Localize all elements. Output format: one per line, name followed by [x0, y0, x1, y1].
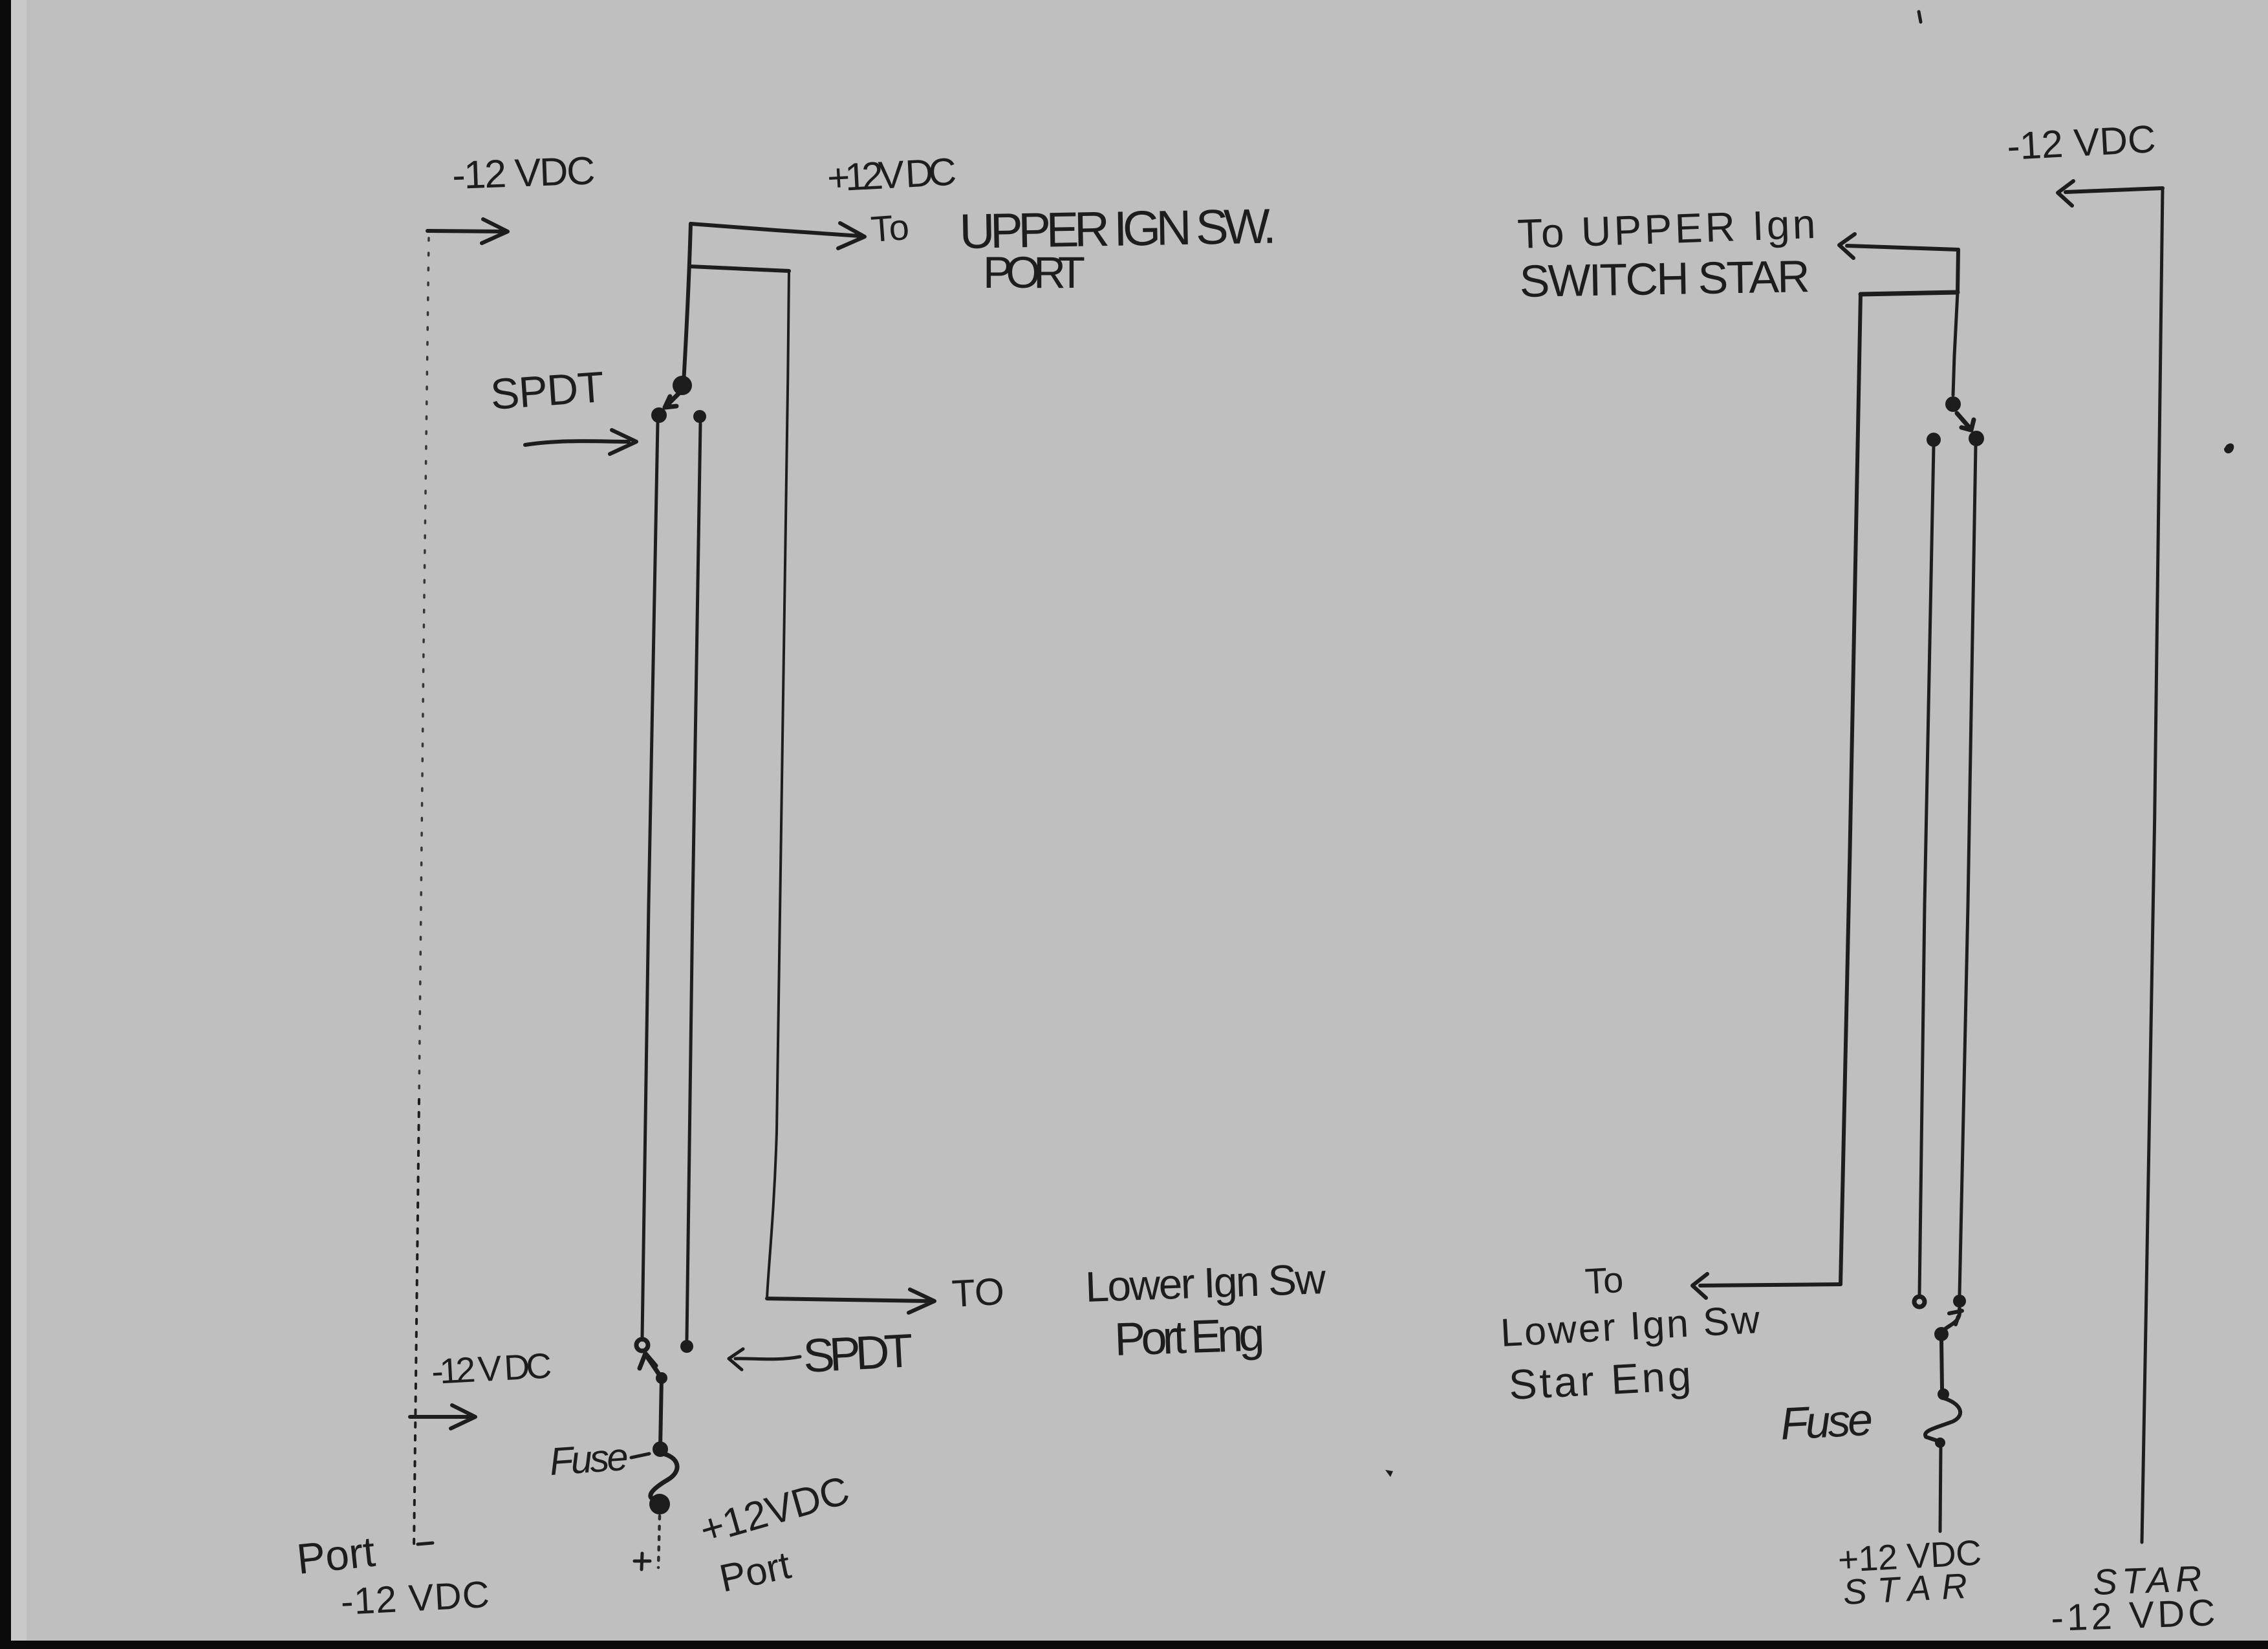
- svg-text:+12V DC: +12V DC: [826, 150, 957, 200]
- svg-text:To: To: [1584, 1259, 1624, 1302]
- svg-text:Port Eng: Port Eng: [1114, 1309, 1266, 1366]
- svg-text:Port: Port: [294, 1527, 377, 1583]
- svg-text:-12 V DC: -12 V DC: [431, 1345, 553, 1392]
- svg-text:PORT: PORT: [983, 248, 1085, 297]
- svg-text:-12 VDC: -12 VDC: [2050, 1591, 2216, 1639]
- svg-text:-12 VDC: -12 VDC: [340, 1573, 490, 1623]
- svg-text:Lower Ign Sw: Lower Ign Sw: [1085, 1255, 1327, 1311]
- svg-text:-12 VDC: -12 VDC: [2006, 117, 2157, 168]
- svg-text:TO: TO: [951, 1270, 1005, 1315]
- svg-text:Fuse: Fuse: [548, 1435, 629, 1483]
- svg-text:SPDT: SPDT: [802, 1324, 914, 1383]
- svg-text:SPDT: SPDT: [489, 363, 606, 419]
- svg-text:-12 VDC: -12 VDC: [451, 148, 596, 197]
- svg-text:Fuse: Fuse: [1779, 1394, 1874, 1449]
- svg-text:To: To: [869, 206, 910, 250]
- svg-text:SWITCH STAR: SWITCH STAR: [1519, 251, 1810, 307]
